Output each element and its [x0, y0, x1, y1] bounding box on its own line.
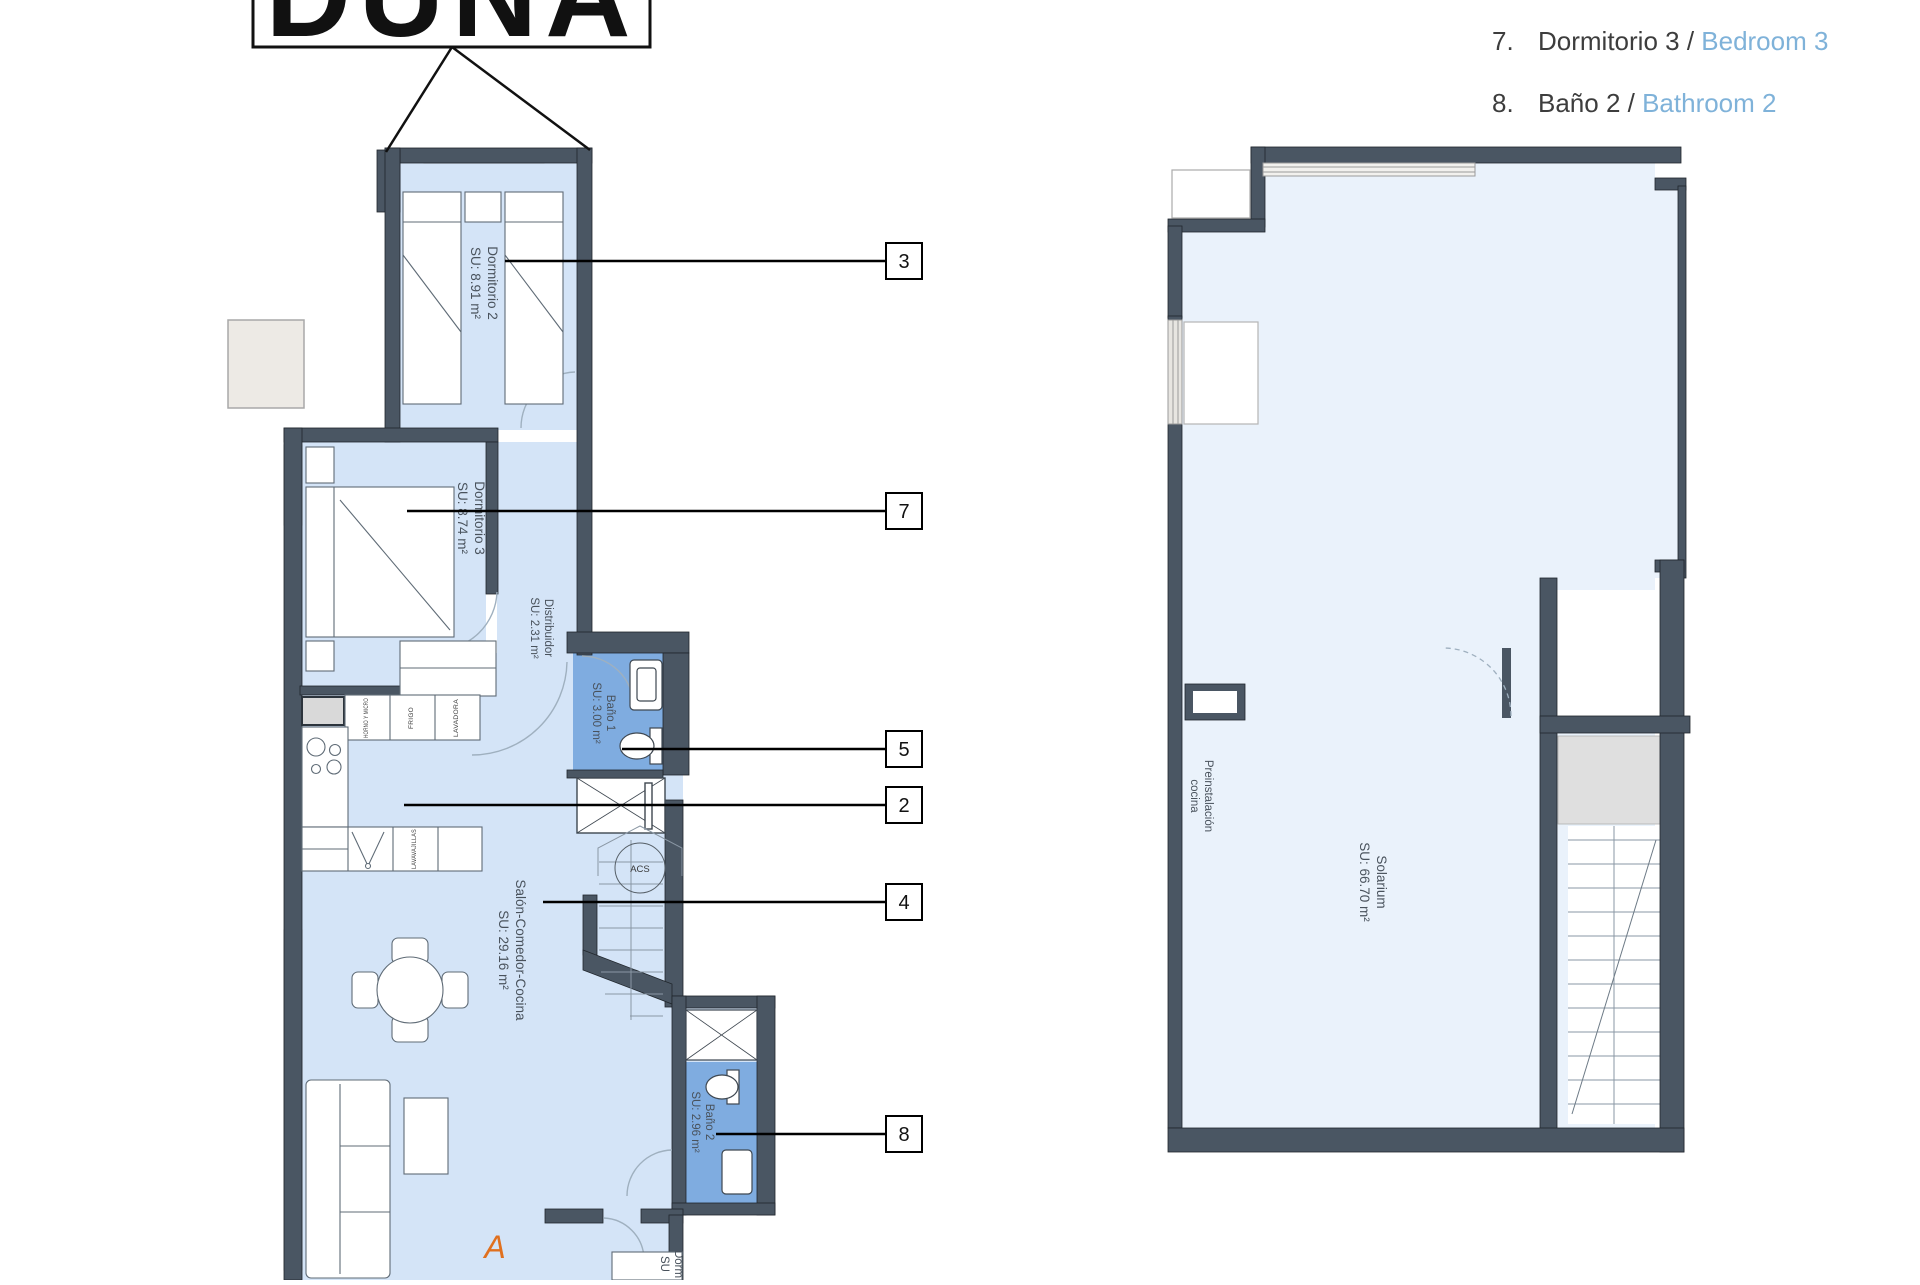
- coffee-table: [404, 1098, 448, 1174]
- svg-text:SU: 8.91 m²: SU: 8.91 m²: [468, 247, 483, 320]
- legend-name-en: Bedroom 3: [1701, 26, 1828, 57]
- svg-text:Baño 2: Baño 2: [703, 1104, 715, 1140]
- window-reveal-box: [1184, 322, 1258, 424]
- svg-text:SU: 29.16 m²: SU: 29.16 m²: [496, 910, 511, 990]
- svg-text:Dormitorio 2: Dormitorio 2: [485, 246, 500, 320]
- callout-number: 7: [898, 501, 909, 523]
- legend-item-8: 8.Baño 2 / Bathroom 2: [1492, 88, 1828, 119]
- left-plan: HORNO Y MICRO FRIGO LAVADORA LAVAVAJILLA…: [228, 148, 775, 1280]
- legend-separator: /: [1620, 88, 1642, 119]
- door-leaf: [1502, 648, 1511, 718]
- legend: 7.Dormitorio 3 / Bedroom 3 8.Baño 2 / Ba…: [1492, 26, 1828, 150]
- acs-label: ACS: [630, 864, 650, 875]
- toilet: [620, 733, 654, 759]
- floorplan-canvas: HORNO Y MICRO FRIGO LAVADORA LAVAVAJILLA…: [0, 0, 1920, 1280]
- recess-box: [1172, 170, 1250, 218]
- callout-number: 3: [898, 251, 909, 273]
- burner: [312, 765, 321, 774]
- legend-item-7: 7.Dormitorio 3 / Bedroom 3: [1492, 26, 1828, 57]
- title-block: DUNA: [253, 0, 650, 152]
- toilet: [706, 1075, 738, 1099]
- svg-text:Baño 1: Baño 1: [604, 695, 616, 731]
- right-plan: Solarium SU: 66.70 m² Preinstalación coc…: [1168, 147, 1690, 1152]
- svg-text:SU: 66.70 m²: SU: 66.70 m²: [1357, 842, 1372, 922]
- appliance-label: LAVADORA: [453, 699, 460, 737]
- detail-line: [452, 47, 590, 150]
- nightstand: [306, 641, 334, 671]
- callout-number: 8: [898, 1124, 909, 1146]
- burner: [330, 745, 341, 756]
- svg-text:SU: 3.00 m²: SU: 3.00 m²: [590, 682, 602, 744]
- callout-number: 5: [898, 739, 909, 761]
- svg-text:SU: 2.31 m²: SU: 2.31 m²: [528, 597, 540, 659]
- nightstand: [306, 447, 334, 483]
- appliance-label: FRIGO: [408, 707, 415, 729]
- partial-bed: [612, 1252, 682, 1280]
- legend-separator: /: [1680, 26, 1702, 57]
- legend-number: 8.: [1492, 88, 1538, 119]
- burner: [307, 738, 325, 756]
- burner: [327, 760, 341, 774]
- svg-text:cocina: cocina: [1188, 779, 1200, 813]
- round-table: [377, 957, 443, 1023]
- kitchen-column: [302, 697, 344, 725]
- exterior-terrace-stub: [228, 320, 304, 408]
- appliance-label: HORNO Y MICRO: [363, 698, 370, 738]
- sofa: [306, 1080, 390, 1278]
- svg-text:SU: 2.96 m²: SU: 2.96 m²: [689, 1091, 701, 1153]
- bed: [403, 192, 461, 404]
- niche-inner: [1193, 691, 1237, 713]
- stair-landing: [1558, 736, 1660, 824]
- callout-number: 4: [898, 892, 909, 914]
- legend-name-es: Baño 2: [1538, 88, 1620, 119]
- svg-text:Dorm: Dorm: [672, 1250, 684, 1278]
- bed: [306, 487, 454, 637]
- section-marker-a: A: [482, 1229, 505, 1265]
- nightstand: [465, 192, 501, 222]
- svg-text:Dormitorio 3: Dormitorio 3: [472, 481, 487, 555]
- legend-number: 7.: [1492, 26, 1538, 57]
- callout-number: 2: [898, 795, 909, 817]
- svg-text:SU: 8.74 m²: SU: 8.74 m²: [455, 482, 470, 555]
- legend-name-es: Dormitorio 3: [1538, 26, 1680, 57]
- appliance-label: LAVAVAJILLAS: [411, 829, 418, 869]
- svg-text:Solarium: Solarium: [1374, 855, 1389, 908]
- sink: [722, 1150, 752, 1194]
- title-text: DUNA: [266, 0, 639, 62]
- stair-void: [1557, 590, 1660, 716]
- chair: [352, 972, 378, 1008]
- svg-text:Preinstalación: Preinstalación: [1202, 760, 1214, 832]
- chair: [442, 972, 468, 1008]
- legend-name-en: Bathroom 2: [1642, 88, 1776, 119]
- detail-line: [386, 47, 452, 152]
- svg-text:Salón-Comedor-Cocina: Salón-Comedor-Cocina: [513, 879, 528, 1021]
- bed: [505, 192, 563, 404]
- svg-text:SU: SU: [658, 1256, 670, 1272]
- svg-text:Distribuidor: Distribuidor: [542, 599, 554, 657]
